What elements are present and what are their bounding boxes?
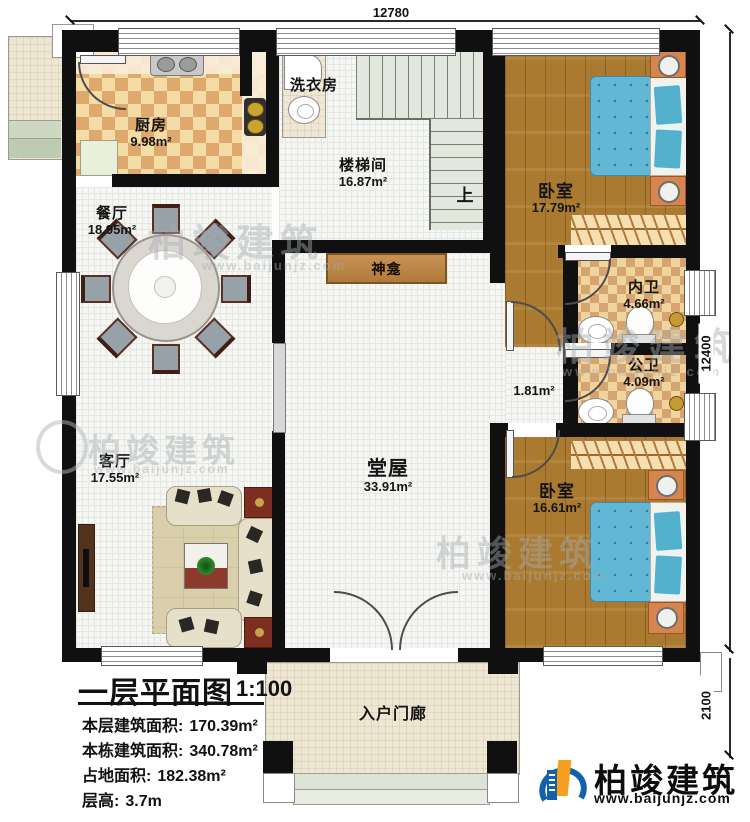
sink-basin-left [157, 57, 175, 72]
porch-pillar-left [237, 648, 267, 674]
wall-hall-right-lower [490, 423, 505, 648]
side-terrace-step2 [9, 138, 61, 158]
bed-bottom-pillow-2 [652, 553, 684, 597]
wall-hall-right-upper [490, 253, 505, 283]
brand-website: www.baijunjz.com [594, 790, 731, 806]
window-dining [56, 272, 80, 396]
plan-scale: 1:100 [236, 676, 292, 702]
living-label: 客厅 17.55m² [82, 454, 148, 485]
bedroom-bottom-label: 卧室 16.61m² [524, 482, 590, 516]
side-terrace-step [9, 120, 61, 139]
dining-chair [81, 275, 111, 303]
dining-table [112, 234, 220, 342]
bed-top-pillow-2 [652, 127, 684, 171]
stair-up-label: 上 [452, 186, 478, 205]
window-ensuite [684, 270, 716, 316]
porch-post-right [487, 741, 517, 773]
plant [197, 557, 215, 575]
lamp [658, 55, 680, 77]
dim-line-top [70, 20, 700, 22]
floor-plan-sheet: 神龛 厨房 9.98m² 洗衣房 楼梯间 16.87m² [0, 0, 750, 822]
wall-below-baths-right [556, 423, 700, 437]
dim-line-right [729, 32, 731, 652]
nightstand-top-2 [650, 176, 686, 206]
sink-basin-right [179, 57, 197, 72]
bed-top-mattress [590, 76, 654, 176]
fridge [80, 140, 118, 176]
title-underline [78, 702, 264, 705]
sofa-cushion [204, 619, 219, 634]
wall-kitchen-right [266, 52, 279, 176]
wardrobe-top [570, 214, 688, 246]
lamp [656, 475, 678, 497]
dim-width-label: 12780 [352, 5, 430, 20]
sofa-cushion [197, 488, 212, 503]
bed-bottom-mattress [590, 502, 654, 602]
burner-top [247, 102, 264, 117]
side-table-ornament [255, 498, 264, 507]
laundry-sink [288, 96, 320, 124]
wall-stair-bedroom [483, 52, 505, 253]
nightstand-bottom-1 [648, 470, 684, 500]
tv-screen [83, 549, 89, 587]
shrine-cabinet: 神龛 [326, 253, 447, 284]
tv-cabinet [78, 524, 95, 612]
stat-floor-area: 本层建筑面积:170.39m² [82, 712, 258, 736]
stat-storey-height: 层高:3.7m [82, 787, 162, 811]
ensuite-label: 内卫 4.66m² [616, 280, 672, 311]
stat-footprint-area: 占地面积:182.38m² [82, 762, 226, 786]
porch-post-left [263, 741, 293, 773]
window-bedroom-bottom [543, 646, 663, 666]
plan-title: 一层平面图 [78, 668, 233, 712]
porch-label: 入户门廊 [338, 706, 448, 724]
laundry-label: 洗衣房 [282, 78, 346, 95]
window-living [101, 646, 203, 666]
kitchen-label: 厨房 9.98m² [118, 118, 184, 149]
entry-opening [330, 648, 458, 662]
nightstand-bottom-2 [648, 602, 684, 634]
dining-table-center [154, 276, 176, 298]
laundry-sink-bowl [297, 104, 314, 119]
wall-kitchen-bottom [112, 174, 279, 187]
hall-floor [285, 253, 505, 648]
bed-top-pillow-1 [652, 83, 685, 127]
hall-label: 堂屋 33.91m² [346, 458, 430, 495]
wall-hall-left-upper [272, 253, 285, 343]
window-bedroom-top [492, 28, 660, 56]
side-table-bottom [244, 617, 275, 648]
public-bath-sink [578, 398, 614, 426]
brand-logo-icon [535, 754, 587, 810]
coffee-table [184, 543, 228, 589]
window-public-bath [684, 393, 716, 441]
ensuite-sink [578, 316, 614, 344]
dining-label: 餐厅 18.95m² [80, 206, 144, 237]
porch-post-cap-right [487, 773, 519, 803]
window-stairwell [276, 28, 456, 56]
porch-post-cap-left [263, 773, 295, 803]
dining-chair [221, 275, 251, 303]
burner-bottom [247, 119, 264, 134]
side-table-top [244, 487, 275, 518]
bowl [588, 324, 607, 339]
stairwell-label: 楼梯间 16.87m² [330, 158, 396, 189]
public-bath-label: 公卫 4.09m² [616, 358, 672, 389]
dim-line-porch [729, 658, 731, 758]
dining-chair [152, 204, 180, 234]
dim-porch-label: 2100 [699, 676, 714, 736]
stair-flight-upper [356, 52, 483, 120]
lamp [656, 607, 678, 629]
wall-kitchen-laundry-stub [240, 52, 252, 96]
wardrobe-bottom [570, 440, 688, 470]
public-bath-shower-head [669, 396, 684, 411]
stat-building-area: 本栋建筑面积:340.78m² [82, 737, 258, 761]
shrine-label: 神龛 [372, 259, 402, 279]
stove [244, 98, 266, 136]
wall-stairroom-bottom [272, 240, 505, 253]
bedroom-top-label: 卧室 17.79m² [524, 182, 588, 216]
porch-pillar-right [488, 648, 518, 674]
stair-flight-lower [429, 118, 485, 230]
ensuite-shower-head [669, 312, 684, 327]
porch-step2 [293, 789, 490, 805]
sliding-door-dining-hall [273, 343, 286, 433]
lamp [658, 181, 680, 203]
side-table-ornament [255, 628, 264, 637]
bowl [588, 406, 607, 421]
dining-chair [152, 344, 180, 374]
bed-bottom-pillow-1 [652, 509, 685, 553]
dim-height-label: 12400 [699, 324, 714, 384]
corridor-label: 1.81m² [503, 384, 565, 399]
sofa-cushion [248, 559, 263, 574]
wall-hall-left-lower [272, 431, 285, 648]
window-kitchen [118, 28, 240, 56]
